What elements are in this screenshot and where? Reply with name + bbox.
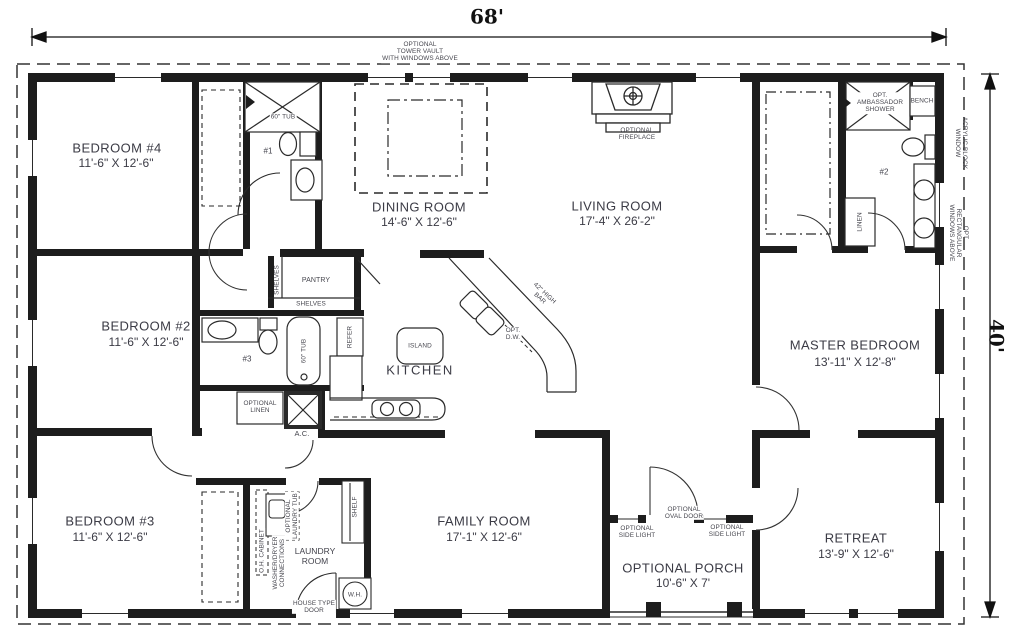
width-dimension-label: 68': [470, 6, 504, 29]
note-opt-rect-windows: OPT. RECTANGULAR WINDOWS ABOVE: [947, 204, 969, 263]
room-dims-bedroom3: 11'-6" X 12'-6": [73, 531, 148, 545]
corner-cabinet-line: [358, 260, 380, 284]
room-dims-master: 13'-11" X 12'-8": [814, 356, 896, 370]
note-water-heater: W.H.: [347, 591, 363, 598]
arrow-left-icon: [32, 32, 46, 42]
note-house-door: HOUSE TYPE DOOR: [292, 600, 336, 614]
porch-post-icon: [727, 602, 742, 617]
sink-icon: [914, 218, 934, 238]
toilet-icon: [280, 133, 297, 156]
bedroom4-closet-rod: [202, 90, 240, 206]
note-tub-bath3: 60" TUB: [300, 338, 307, 365]
toilet-icon: [902, 138, 924, 156]
note-refer: REFER: [346, 325, 353, 349]
room-label-laundry: LAUNDRY ROOM: [295, 546, 335, 566]
note-shelves-bottom: SHELVES: [295, 300, 327, 307]
note-shelf: SHELF: [351, 495, 358, 518]
note-opt-dw: OPT. D.W.: [505, 327, 522, 341]
note-side-light-left: OPTIONAL SIDE LIGHT: [619, 525, 656, 539]
burner-icon: [400, 403, 413, 416]
bedroom3-closet-rod: [202, 492, 238, 602]
room-label-master: MASTER BEDROOM: [790, 339, 921, 354]
room-label-bedroom2: BEDROOM #2: [101, 320, 190, 335]
room-label-dining: DINING ROOM: [372, 201, 466, 216]
note-washer-dryer: WASHER/DRYER CONNECTIONS: [272, 535, 286, 590]
sink-icon: [296, 168, 314, 192]
floor-plan: 68' 40' BEDROOM #4 11'-6" X 12'-6" BEDRO…: [0, 0, 1017, 643]
note-pantry: PANTRY: [302, 277, 330, 285]
retreat-door-arc: [756, 488, 798, 530]
room-dims-bedroom2: 11'-6" X 12'-6": [109, 336, 184, 350]
room-dims-family: 17'-1" X 12'-6": [446, 531, 522, 545]
master-closet-door-arc: [797, 215, 832, 250]
room-dims-dining: 14'-6" X 12'-6": [381, 216, 457, 230]
porch-post-icon: [646, 602, 661, 617]
kitchen-fixtures: [330, 258, 576, 420]
note-tower-vault: OPTIONAL TOWER VAULT WITH WINDOWS ABOVE: [381, 41, 459, 63]
note-fireplace: OPTIONAL FIREPLACE: [619, 127, 655, 141]
room-label-porch: OPTIONAL PORCH: [622, 562, 743, 577]
room-dims-living: 17'-4" X 26'-2": [579, 215, 655, 229]
master-entry-door-arc: [756, 387, 799, 430]
arrow-right-icon: [932, 32, 946, 42]
room-label-kitchen: KITCHEN: [386, 364, 454, 379]
note-tub-bath1: 60" TUB: [270, 113, 297, 120]
note-shelves-left: SHELVES: [273, 265, 280, 295]
note-laundry-tub: OPTIONAL LAUNDRY TUB: [285, 492, 299, 540]
toilet-tank-icon: [260, 318, 277, 330]
note-ac: A.C.: [295, 430, 310, 438]
hall-door-arc: [285, 440, 313, 468]
note-oh-cabinet: O.H. CABINET: [258, 528, 265, 574]
master-closet-rod: [766, 92, 830, 234]
note-linen: LINEN: [856, 211, 863, 232]
drain-icon: [301, 374, 307, 380]
room-label-bedroom4: BEDROOM #4: [72, 142, 161, 157]
room-dims-retreat: 13'-9" X 12'-6": [818, 548, 894, 562]
bedroom2-door-arc: [209, 252, 247, 290]
room-label-living: LIVING ROOM: [571, 200, 662, 215]
porch-deck: [610, 602, 753, 617]
tower-vault-inner-outline: [388, 100, 462, 176]
burner-icon: [381, 403, 394, 416]
bath1-fixtures: [238, 82, 322, 215]
toilet-tank-icon: [300, 132, 316, 156]
note-island: ISLAND: [408, 342, 432, 349]
toilet-tank-icon: [925, 135, 935, 159]
note-shower: OPT. AMBASSADOR SHOWER: [856, 92, 904, 114]
room-dims-porch: 10'-6" X 7': [656, 577, 710, 591]
height-dimension-label: 40': [985, 319, 1008, 353]
arrow-up-icon: [985, 74, 995, 89]
bedroom3-door-arc: [152, 436, 192, 476]
room-dims-bedroom4: 11'-6" X 12'-6": [79, 157, 154, 171]
room-label-retreat: RETREAT: [825, 532, 888, 547]
bath1-number: #1: [264, 146, 273, 155]
room-label-family: FAMILY ROOM: [437, 515, 531, 530]
room-label-bedroom3: BEDROOM #3: [65, 515, 154, 530]
bedroom4-door-arc: [209, 214, 247, 252]
bath2-number: #2: [880, 167, 889, 176]
note-opt-linen: OPTIONAL LINEN: [243, 400, 276, 414]
sink-icon: [208, 321, 236, 339]
fireplace-icon: [592, 82, 672, 132]
bath3-number: #3: [243, 354, 252, 363]
note-bench: BENCH: [911, 97, 934, 104]
toilet-icon: [259, 330, 277, 354]
note-side-light-right: OPTIONAL SIDE LIGHT: [709, 524, 746, 538]
note-oval-door: OPTIONAL OVAL DOOR: [664, 506, 704, 520]
arrow-down-icon: [985, 602, 995, 617]
sink-icon: [914, 180, 934, 200]
note-acrylic-window: ACRYLIC BLOCK WINDOW: [954, 117, 968, 169]
counter-icon: [330, 356, 362, 400]
